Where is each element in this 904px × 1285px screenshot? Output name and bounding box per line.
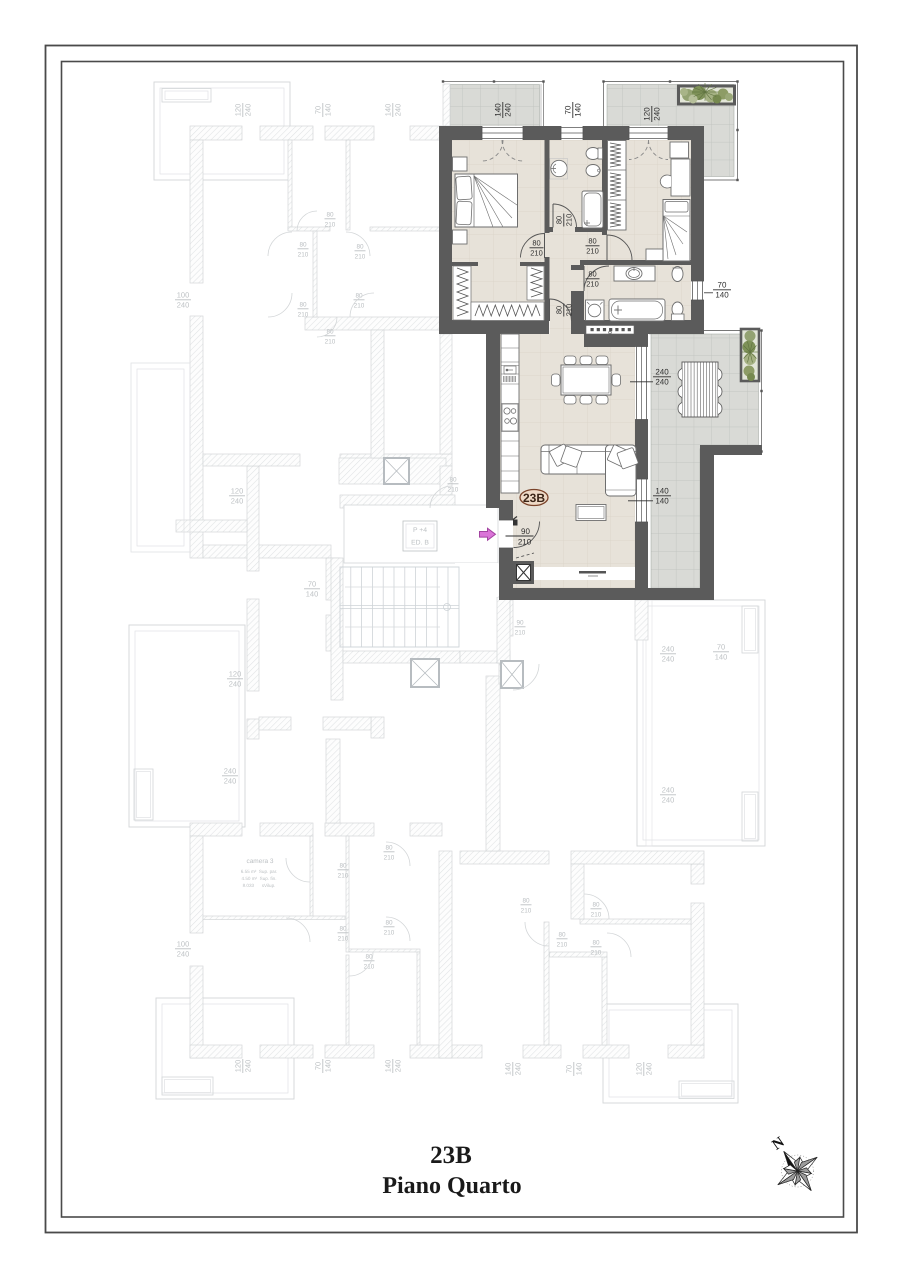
svg-text:Piano Quarto: Piano Quarto bbox=[382, 1173, 521, 1199]
svg-text:210: 210 bbox=[325, 222, 336, 229]
svg-text:ED. B: ED. B bbox=[411, 540, 429, 547]
svg-text:210: 210 bbox=[515, 630, 526, 637]
svg-text:4.50 m² Sup. fin.: 4.50 m² Sup. fin. bbox=[242, 876, 277, 881]
svg-text:80: 80 bbox=[588, 270, 596, 279]
svg-text:210: 210 bbox=[384, 855, 395, 862]
svg-text:80: 80 bbox=[299, 302, 307, 309]
svg-text:240: 240 bbox=[645, 1063, 654, 1076]
svg-text:240: 240 bbox=[231, 497, 244, 506]
svg-text:120: 120 bbox=[234, 1060, 243, 1073]
svg-text:240: 240 bbox=[224, 777, 237, 786]
svg-text:240: 240 bbox=[655, 378, 669, 387]
svg-text:120: 120 bbox=[234, 104, 243, 117]
svg-text:140: 140 bbox=[384, 1060, 393, 1073]
svg-text:90: 90 bbox=[516, 620, 524, 627]
svg-text:80: 80 bbox=[339, 863, 347, 870]
svg-text:70: 70 bbox=[717, 643, 725, 652]
svg-text:210: 210 bbox=[557, 942, 568, 949]
svg-text:80: 80 bbox=[299, 242, 307, 249]
svg-text:70: 70 bbox=[718, 281, 727, 290]
svg-text:80: 80 bbox=[385, 920, 393, 927]
svg-text:80: 80 bbox=[555, 216, 564, 224]
svg-text:240: 240 bbox=[655, 368, 669, 377]
svg-text:6.55 m² Sup. par.: 6.55 m² Sup. par. bbox=[241, 869, 278, 874]
svg-text:240: 240 bbox=[662, 645, 675, 654]
svg-text:240: 240 bbox=[244, 104, 253, 117]
svg-text:240: 240 bbox=[504, 103, 513, 117]
svg-text:8.033 sVilup.: 8.033 sVilup. bbox=[243, 883, 276, 888]
svg-text:80: 80 bbox=[588, 237, 596, 246]
svg-text:240: 240 bbox=[394, 104, 403, 117]
svg-text:camera 3: camera 3 bbox=[246, 858, 273, 865]
svg-text:120: 120 bbox=[643, 107, 652, 121]
svg-text:70: 70 bbox=[565, 1065, 574, 1073]
svg-text:23B: 23B bbox=[430, 1142, 472, 1169]
svg-text:240: 240 bbox=[662, 655, 675, 664]
svg-text:70: 70 bbox=[314, 1062, 323, 1070]
svg-text:140: 140 bbox=[306, 590, 319, 599]
svg-text:80: 80 bbox=[339, 926, 347, 933]
svg-text:120: 120 bbox=[231, 487, 244, 496]
svg-text:140: 140 bbox=[655, 497, 669, 506]
svg-text:80: 80 bbox=[532, 239, 540, 248]
svg-text:80: 80 bbox=[385, 845, 393, 852]
svg-text:210: 210 bbox=[586, 247, 599, 256]
svg-text:210: 210 bbox=[338, 936, 349, 943]
svg-text:240: 240 bbox=[662, 786, 675, 795]
svg-text:210: 210 bbox=[521, 908, 532, 915]
svg-text:240: 240 bbox=[177, 301, 190, 310]
svg-text:80: 80 bbox=[592, 902, 600, 909]
svg-text:210: 210 bbox=[355, 254, 366, 261]
svg-text:80: 80 bbox=[326, 212, 334, 219]
svg-text:140: 140 bbox=[715, 291, 729, 300]
svg-text:240: 240 bbox=[394, 1060, 403, 1073]
svg-text:80: 80 bbox=[555, 306, 564, 314]
svg-text:80: 80 bbox=[522, 898, 530, 905]
svg-text:210: 210 bbox=[591, 950, 602, 957]
svg-text:140: 140 bbox=[575, 1063, 584, 1076]
svg-text:100: 100 bbox=[177, 940, 190, 949]
svg-text:90: 90 bbox=[521, 527, 530, 536]
svg-text:210: 210 bbox=[298, 312, 309, 319]
svg-text:P +4: P +4 bbox=[413, 527, 427, 534]
svg-text:23B: 23B bbox=[523, 491, 545, 505]
svg-text:240: 240 bbox=[229, 680, 242, 689]
svg-text:210: 210 bbox=[518, 538, 532, 547]
svg-text:140: 140 bbox=[324, 104, 333, 117]
svg-text:210: 210 bbox=[565, 214, 574, 227]
svg-text:120: 120 bbox=[229, 670, 242, 679]
svg-text:240: 240 bbox=[662, 796, 675, 805]
svg-text:210: 210 bbox=[530, 249, 543, 258]
svg-text:210: 210 bbox=[591, 912, 602, 919]
svg-text:240: 240 bbox=[653, 107, 662, 121]
svg-text:140: 140 bbox=[715, 653, 728, 662]
svg-text:80: 80 bbox=[592, 940, 600, 947]
svg-text:210: 210 bbox=[298, 252, 309, 259]
svg-text:210: 210 bbox=[586, 280, 599, 289]
svg-text:140: 140 bbox=[324, 1060, 333, 1073]
svg-text:240: 240 bbox=[177, 950, 190, 959]
svg-text:210: 210 bbox=[565, 304, 574, 317]
svg-text:80: 80 bbox=[449, 477, 457, 484]
svg-text:140: 140 bbox=[574, 103, 583, 117]
svg-text:70: 70 bbox=[564, 105, 573, 114]
svg-text:80: 80 bbox=[356, 244, 364, 251]
svg-text:210: 210 bbox=[338, 873, 349, 880]
svg-text:140: 140 bbox=[384, 104, 393, 117]
svg-text:100: 100 bbox=[177, 291, 190, 300]
svg-text:210: 210 bbox=[384, 930, 395, 937]
svg-text:80: 80 bbox=[558, 932, 566, 939]
svg-text:240: 240 bbox=[244, 1060, 253, 1073]
svg-text:70: 70 bbox=[308, 580, 316, 589]
svg-text:120: 120 bbox=[635, 1063, 644, 1076]
svg-text:140: 140 bbox=[655, 487, 669, 496]
svg-text:210: 210 bbox=[354, 303, 365, 310]
svg-text:240: 240 bbox=[514, 1063, 523, 1076]
svg-text:70: 70 bbox=[314, 106, 323, 114]
svg-text:140: 140 bbox=[494, 103, 503, 117]
svg-text:210: 210 bbox=[448, 487, 459, 494]
svg-text:210: 210 bbox=[325, 339, 336, 346]
svg-text:240: 240 bbox=[224, 767, 237, 776]
svg-text:140: 140 bbox=[504, 1063, 513, 1076]
